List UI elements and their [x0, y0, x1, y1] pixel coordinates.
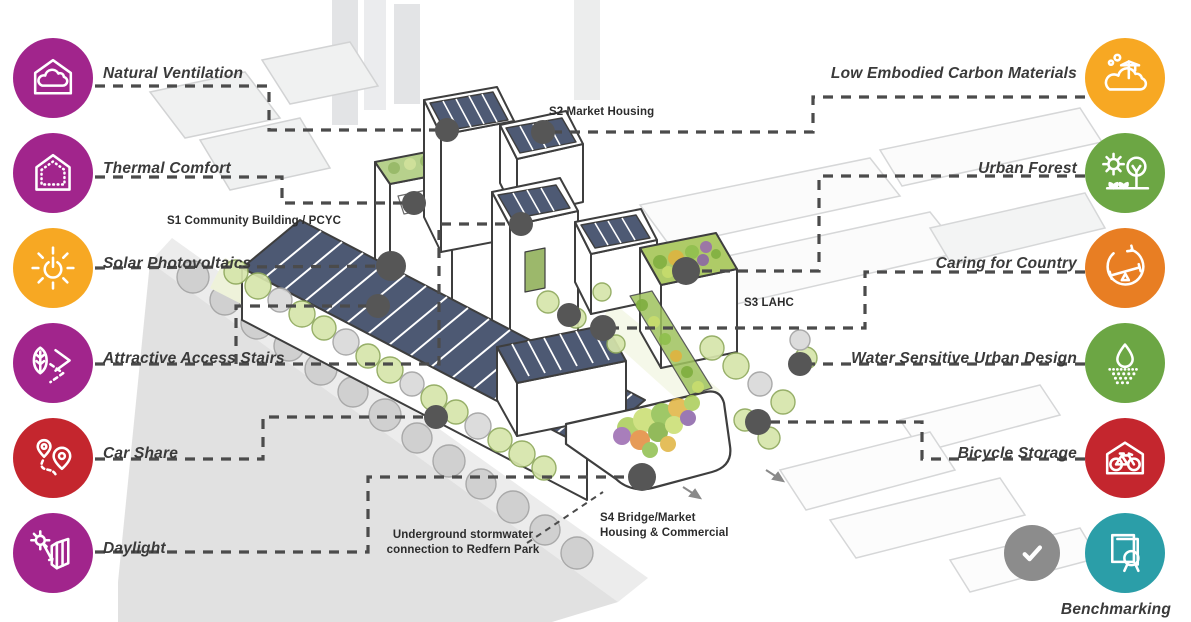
feature-location-dot[interactable] — [366, 294, 390, 318]
feature-label: Caring for Country — [936, 255, 1077, 273]
building-label: S3 LAHC — [744, 296, 794, 311]
feature-label: Attractive Access Stairs — [103, 350, 285, 368]
raindrop-icon[interactable] — [1085, 323, 1165, 403]
map-pins-icon[interactable] — [13, 418, 93, 498]
check-icon — [1015, 536, 1049, 570]
house-cloud-icon[interactable] — [13, 38, 93, 118]
feature-label: Natural Ventilation — [103, 65, 243, 83]
feature-location-dot[interactable] — [509, 212, 533, 236]
diagram-canvas: S2 Market HousingS1 Community Building /… — [0, 0, 1191, 622]
feature-location-dot[interactable] — [745, 409, 771, 435]
feature-label: Car Share — [103, 445, 178, 463]
leaf-chevrons-icon[interactable] — [13, 323, 93, 403]
sun-building-icon[interactable] — [13, 513, 93, 593]
feature-label: Daylight — [103, 540, 166, 558]
feature-label: Thermal Comfort — [103, 160, 231, 178]
feature-location-dot[interactable] — [424, 405, 448, 429]
insulated-house-icon[interactable] — [13, 133, 93, 213]
building-label: S4 Bridge/Market Housing & Commercial — [600, 511, 729, 540]
feature-label: Urban Forest — [978, 160, 1077, 178]
sun-tree-icon[interactable] — [1085, 133, 1165, 213]
feature-location-dot[interactable] — [376, 251, 406, 281]
feature-urban-forest: Urban Forest — [1085, 133, 1165, 213]
feature-label: Solar Photovoltaics — [103, 255, 252, 273]
feature-location-dot[interactable] — [628, 463, 656, 491]
feature-bicycle-storage: Bicycle Storage — [1085, 418, 1165, 498]
feature-benchmarking: Benchmarking — [1085, 513, 1165, 593]
feature-water-sensitive: Water Sensitive Urban Design — [1085, 323, 1165, 403]
cycle-seesaw-icon[interactable] — [1085, 228, 1165, 308]
feature-label: Water Sensitive Urban Design — [851, 350, 1077, 368]
certificate-icon[interactable] — [1085, 513, 1165, 593]
feature-thermal-comfort: Thermal Comfort — [13, 133, 93, 213]
feature-low-embodied-carbon: Low Embodied Carbon Materials — [1085, 38, 1165, 118]
feature-access-stairs: Attractive Access Stairs — [13, 323, 93, 403]
feature-location-dot[interactable] — [672, 257, 700, 285]
feature-label: Bicycle Storage — [958, 445, 1077, 463]
bike-shed-icon[interactable] — [1085, 418, 1165, 498]
feature-location-dot[interactable] — [402, 191, 426, 215]
cloud-crane-icon[interactable] — [1085, 38, 1165, 118]
feature-location-dot[interactable] — [590, 315, 616, 341]
sun-power-icon[interactable] — [13, 228, 93, 308]
checkmark-badge[interactable] — [1004, 525, 1060, 581]
feature-label: Low Embodied Carbon Materials — [831, 65, 1077, 83]
feature-location-dot[interactable] — [435, 118, 459, 142]
feature-natural-ventilation: Natural Ventilation — [13, 38, 93, 118]
building-label: S1 Community Building / PCYC — [167, 214, 341, 229]
feature-caring-for-country: Caring for Country — [1085, 228, 1165, 308]
feature-car-share: Car Share — [13, 418, 93, 498]
building-label: Underground stormwater connection to Red… — [387, 528, 540, 557]
feature-daylight: Daylight — [13, 513, 93, 593]
feature-label: Benchmarking — [1061, 601, 1171, 619]
building-label: S2 Market Housing — [549, 105, 654, 120]
site-illustration — [0, 0, 1191, 622]
feature-location-dot[interactable] — [788, 352, 812, 376]
feature-solar-photovoltaics: Solar Photovoltaics — [13, 228, 93, 308]
feature-location-dot[interactable] — [531, 120, 555, 144]
feature-location-dot[interactable] — [557, 303, 581, 327]
